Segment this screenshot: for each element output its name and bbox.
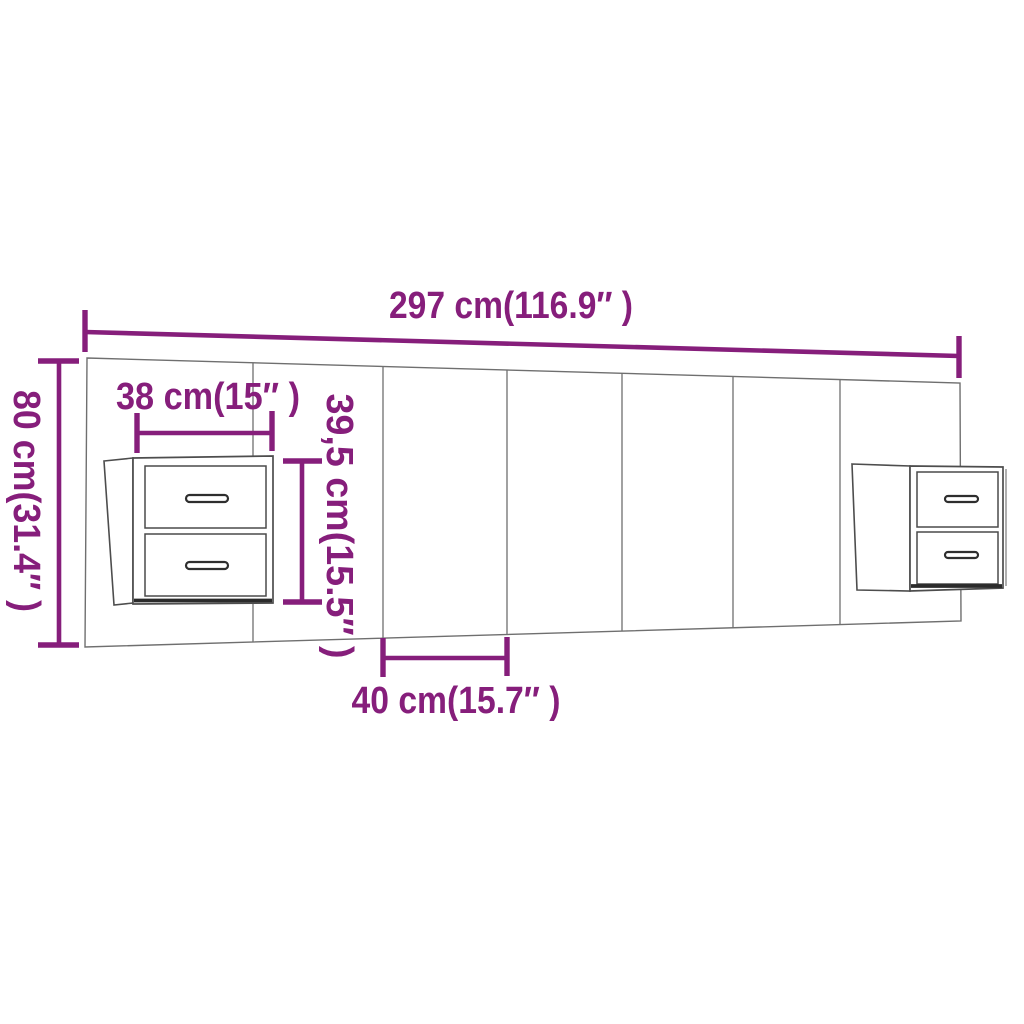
total-width-label: 297 cm(116.9″ )	[389, 285, 633, 327]
drawer-handle	[945, 552, 978, 558]
drawer-handle	[186, 562, 228, 569]
diagram-canvas: 297 cm(116.9″ ) 80 cm(31.4″ ) 38 cm(15″ …	[0, 0, 1024, 1024]
right-cabinet-side-panel	[852, 464, 910, 591]
dimension-diagram: 297 cm(116.9″ ) 80 cm(31.4″ ) 38 cm(15″ …	[0, 0, 1024, 1024]
dimension-line	[85, 332, 959, 356]
dimension-total-height: 80 cm(31.4″ )	[5, 361, 79, 645]
left-cabinet	[104, 456, 273, 605]
dimension-panel-width: 40 cm(15.7″ )	[352, 637, 561, 722]
total-height-label: 80 cm(31.4″ )	[5, 390, 47, 612]
right-cabinet	[852, 464, 1006, 591]
drawer-handle	[945, 496, 978, 502]
cabinet-height-label: 39,5 cm(15.5″ )	[318, 394, 360, 659]
panel-width-label: 40 cm(15.7″ )	[352, 680, 561, 722]
cabinet-width-label: 38 cm(15″ )	[116, 376, 300, 418]
drawer-handle	[186, 495, 228, 502]
